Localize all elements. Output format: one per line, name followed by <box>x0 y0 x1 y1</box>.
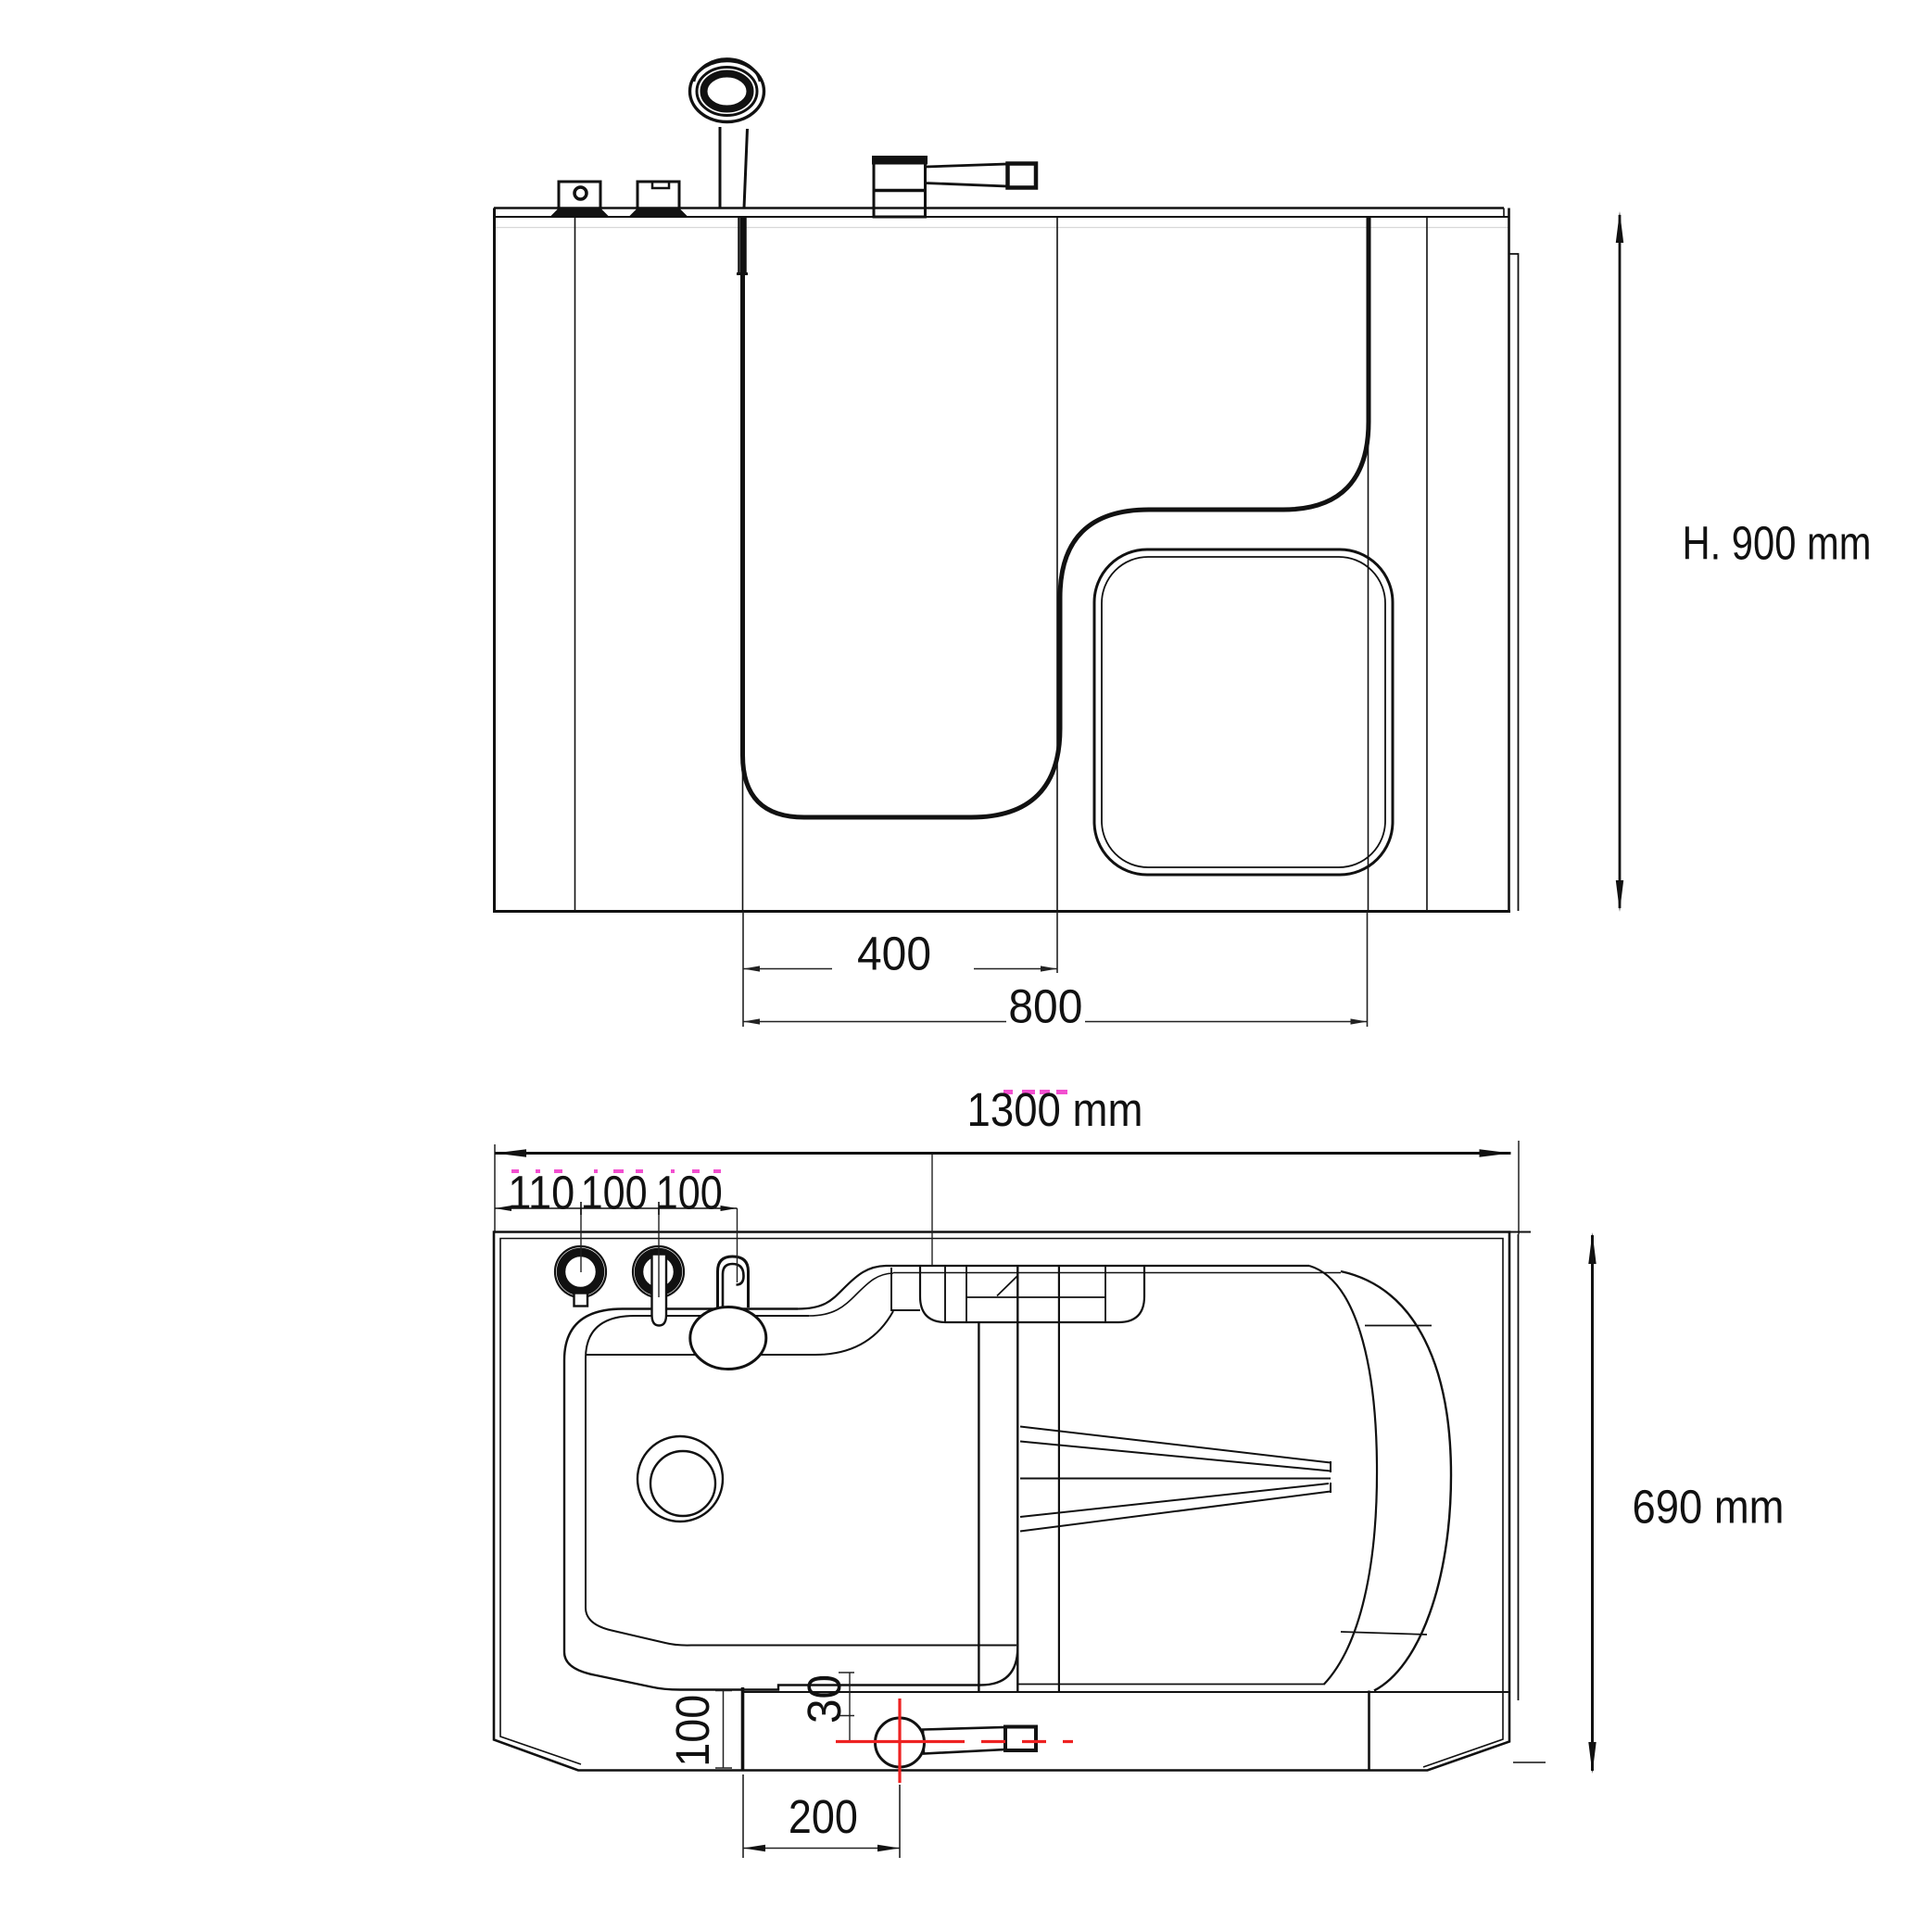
svg-text:400: 400 <box>857 928 931 980</box>
svg-text:100: 100 <box>581 1167 648 1219</box>
svg-text:690 mm: 690 mm <box>1633 1481 1785 1534</box>
svg-text:100: 100 <box>666 1695 719 1767</box>
svg-text:800: 800 <box>1008 980 1082 1033</box>
svg-text:30: 30 <box>798 1674 851 1724</box>
svg-text:100: 100 <box>656 1167 723 1219</box>
svg-text:H. 900 mm: H. 900 mm <box>1683 517 1872 570</box>
svg-text:1300 mm: 1300 mm <box>967 1083 1143 1136</box>
svg-text:200: 200 <box>789 1790 858 1843</box>
svg-text:110: 110 <box>508 1167 574 1219</box>
